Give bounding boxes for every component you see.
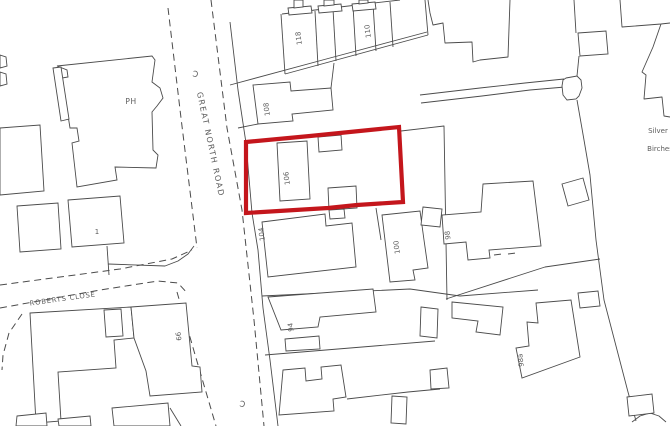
terrace-left-edge [281, 14, 285, 74]
ne-plot-line-a [574, 0, 576, 33]
terrace-divider-2 [333, 9, 336, 61]
label-birches: Birches [647, 145, 670, 153]
east-boundary [577, 100, 636, 421]
building-98-outbuilding [562, 178, 589, 206]
br-building-2 [430, 368, 449, 389]
terrace-divider-5 [390, 2, 393, 47]
label-ph: PH [125, 97, 136, 106]
ne-building-outline [428, 0, 510, 62]
label-100: 100 [392, 240, 402, 254]
square-building-a [17, 203, 61, 252]
building-98-square [421, 207, 442, 227]
boundary-108-arm [331, 63, 334, 88]
label-roberts-close: ROBERTS CLOSE [29, 290, 96, 307]
location-plan-map: PHGREAT NORTH ROADCC11811010810610410098… [0, 0, 670, 426]
terrace-wing-2-stem [324, 0, 334, 6]
building-96 [452, 302, 503, 335]
se-boundary [446, 259, 600, 299]
notched-building [279, 365, 346, 415]
label-98a: 98a [516, 353, 526, 367]
label-great-north-road: GREAT NORTH ROAD [195, 91, 226, 198]
label-106: 106 [282, 171, 292, 186]
ph-building [57, 56, 163, 187]
dash-98-b [508, 253, 516, 254]
plot-line-104-100 [376, 208, 381, 240]
terrace-divider-4 [373, 4, 376, 51]
label-1: 1 [95, 228, 99, 236]
terrace-wing-1-stem [294, 0, 303, 8]
site-plan-svg: PHGREAT NORTH ROADCC11811010810610410098… [0, 0, 670, 426]
dash-98-a [494, 254, 502, 255]
terrace-front-boundary [230, 32, 427, 85]
driveway-bulb [562, 76, 582, 100]
terrace-wing-3-stem [359, 0, 368, 4]
terrace-bottom-edge [285, 35, 428, 74]
building-92 [420, 307, 438, 338]
ne-square-building [578, 31, 608, 56]
sw-small-2 [58, 416, 91, 426]
ne-plot-line-b [577, 56, 579, 76]
sw-small-1 [16, 413, 47, 426]
silver-birches-outline [642, 24, 670, 117]
terrace-divider-3 [353, 6, 356, 56]
sw-garage [104, 309, 123, 337]
building-94-rear [285, 336, 320, 351]
sw-kerb [2, 314, 22, 370]
left-building [0, 125, 44, 195]
driveway-north [420, 79, 564, 95]
map-layers: PHGREAT NORTH ROADCC11811010810610410098… [0, 0, 670, 426]
terrace-divider-1 [315, 11, 318, 66]
edge-bump-b [0, 72, 7, 86]
building-106-porch [329, 209, 345, 219]
building-66 [131, 303, 202, 396]
label-94: 94 [286, 322, 295, 332]
label-108: 108 [262, 102, 272, 116]
driveway-south [421, 87, 565, 103]
edge-bump-a [0, 55, 7, 68]
symbol-c-south: C [239, 398, 246, 408]
label-silver: Silver [648, 127, 668, 135]
br-square [627, 394, 654, 416]
symbol-c-north: C [192, 68, 199, 78]
label-98: 98 [444, 230, 453, 240]
gnr-west-edge-north [168, 8, 197, 248]
br-building-1 [391, 396, 407, 424]
label-118: 118 [294, 31, 304, 45]
building-98a-outbuilding [578, 291, 600, 308]
building-106-outbuilding [318, 135, 342, 152]
building-no1 [68, 196, 124, 247]
building-106 [277, 141, 310, 201]
bottom-line-a [170, 408, 181, 426]
label-66: 66 [174, 331, 183, 341]
building-104 [262, 214, 356, 277]
bottom-building [112, 403, 170, 426]
building-98 [442, 181, 541, 260]
ne-corner-building [620, 0, 670, 27]
roberts-close-north-edge [0, 250, 192, 285]
boundary-108-south [238, 124, 258, 128]
terrace-right-edge [425, 0, 428, 35]
label-104: 104 [257, 227, 267, 242]
label-110: 110 [363, 24, 373, 38]
